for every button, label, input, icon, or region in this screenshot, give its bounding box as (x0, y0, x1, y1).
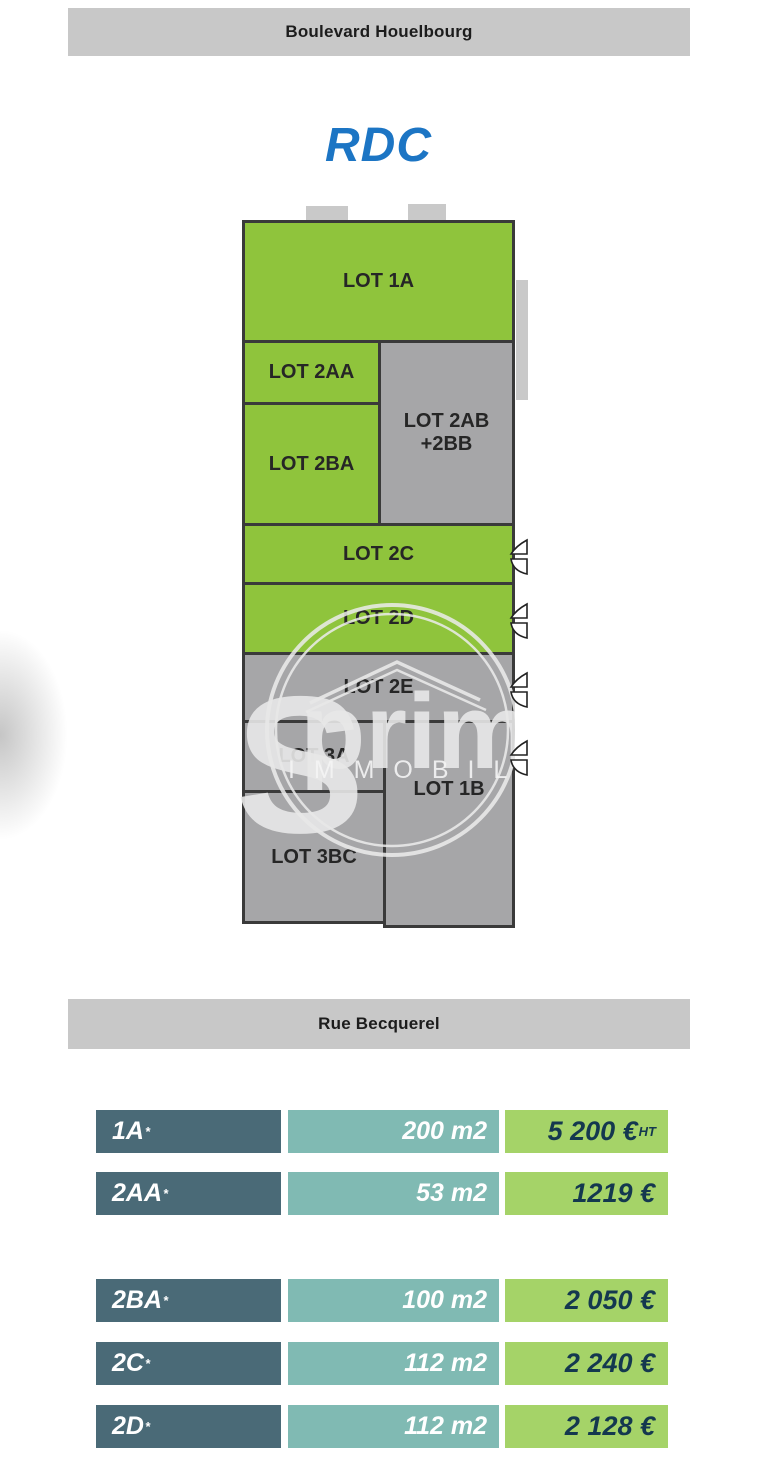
lot-2c: LOT 2C (242, 523, 515, 585)
table-row-lot-cell: 2AA* (96, 1172, 281, 1215)
lot-label: LOT 2AB (404, 410, 490, 433)
price-value: 1219 € (572, 1178, 655, 1209)
lot-label: LOT 1A (343, 270, 414, 293)
area-value: 200 m2 (402, 1117, 487, 1146)
price-value: 2 240 € (565, 1348, 655, 1379)
floor-plan: LOT 1A LOT 2AA LOT 2BA LOT 2AB +2BB LOT … (242, 220, 515, 928)
lot-2d: LOT 2D (242, 582, 515, 655)
lot-label: LOT 2D (343, 607, 414, 630)
street-bar-bottom: Rue Becquerel (68, 999, 690, 1049)
table-row-lot-cell: 2D* (96, 1405, 281, 1448)
lot-1b: LOT 1B (383, 720, 515, 928)
lot-label: LOT 1B (413, 778, 484, 801)
lot-code: 2BA (112, 1286, 162, 1315)
table-row-price-cell: 5 200 €HT (505, 1110, 668, 1153)
lot-label: +2BB (421, 433, 473, 456)
table-row-price-cell: 2 050 € (505, 1279, 668, 1322)
lot-code: 2AA (112, 1179, 162, 1208)
street-label-bottom: Rue Becquerel (318, 1014, 440, 1034)
table-row-lot-cell: 1A* (96, 1110, 281, 1153)
lot-code: 2D (112, 1412, 144, 1441)
lot-label: LOT 3A (278, 745, 349, 768)
lot-2ab-2bb: LOT 2AB +2BB (378, 340, 515, 526)
lot-2e: LOT 2E (242, 652, 515, 723)
table-row-area-cell: 100 m2 (288, 1279, 499, 1322)
table-row-area-cell: 112 m2 (288, 1405, 499, 1448)
price-value: 2 050 € (565, 1285, 655, 1316)
floor-title: RDC (242, 118, 515, 178)
area-value: 112 m2 (404, 1412, 487, 1441)
area-value: 100 m2 (402, 1286, 487, 1315)
price-value: 5 200 € (548, 1116, 638, 1147)
watermark-glow (0, 600, 80, 870)
lot-label: LOT 2BA (269, 453, 355, 476)
door-swing-icon (508, 739, 530, 777)
lot-code: 1A (112, 1117, 144, 1146)
lot-3bc: LOT 3BC (242, 790, 386, 924)
entrance-tab (408, 204, 446, 220)
area-value: 112 m2 (404, 1349, 487, 1378)
lot-3a: LOT 3A (242, 720, 386, 793)
table-row-area-cell: 112 m2 (288, 1342, 499, 1385)
lot-2ba: LOT 2BA (242, 402, 381, 526)
lot-1a: LOT 1A (242, 220, 515, 343)
lot-label: LOT 3BC (271, 846, 357, 869)
lot-label: LOT 2AA (269, 361, 355, 384)
door-swing-icon (508, 538, 530, 576)
table-row-area-cell: 200 m2 (288, 1110, 499, 1153)
lot-2aa: LOT 2AA (242, 340, 381, 405)
table-row-lot-cell: 2C* (96, 1342, 281, 1385)
street-bar-top: Boulevard Houelbourg (68, 8, 690, 56)
door-swing-icon (508, 671, 530, 709)
table-row-price-cell: 2 240 € (505, 1342, 668, 1385)
lot-code: 2C (112, 1349, 144, 1378)
lot-label: LOT 2E (343, 676, 413, 699)
table-row-lot-cell: 2BA* (96, 1279, 281, 1322)
lot-label: LOT 2C (343, 543, 414, 566)
door-swing-icon (508, 602, 530, 640)
table-row-price-cell: 1219 € (505, 1172, 668, 1215)
area-value: 53 m2 (416, 1179, 487, 1208)
entrance-tab (306, 206, 348, 220)
street-label-top: Boulevard Houelbourg (285, 22, 472, 42)
table-row-area-cell: 53 m2 (288, 1172, 499, 1215)
table-row-price-cell: 2 128 € (505, 1405, 668, 1448)
price-value: 2 128 € (565, 1411, 655, 1442)
side-tab (516, 280, 528, 400)
